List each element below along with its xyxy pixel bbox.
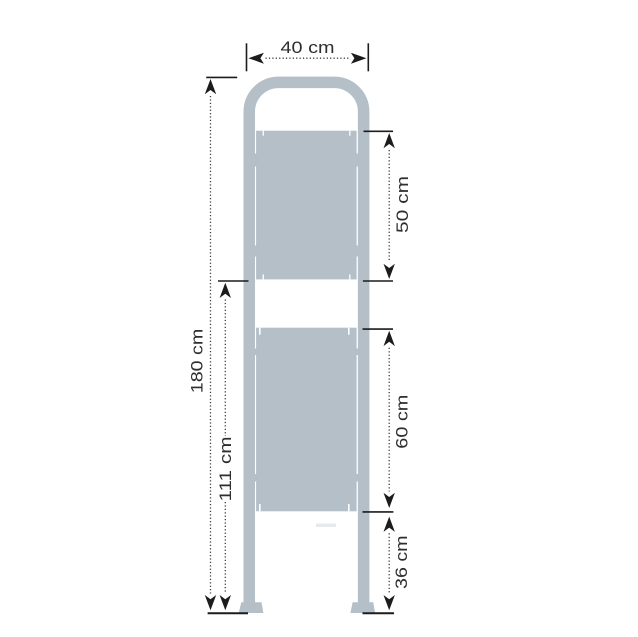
svg-text:50 cm: 50 cm <box>394 176 412 233</box>
svg-text:40 cm: 40 cm <box>281 39 335 57</box>
svg-text:111 cm: 111 cm <box>217 437 235 502</box>
svg-text:36 cm: 36 cm <box>393 535 411 589</box>
svg-text:60 cm: 60 cm <box>393 395 411 449</box>
svg-text:180 cm: 180 cm <box>188 329 206 394</box>
